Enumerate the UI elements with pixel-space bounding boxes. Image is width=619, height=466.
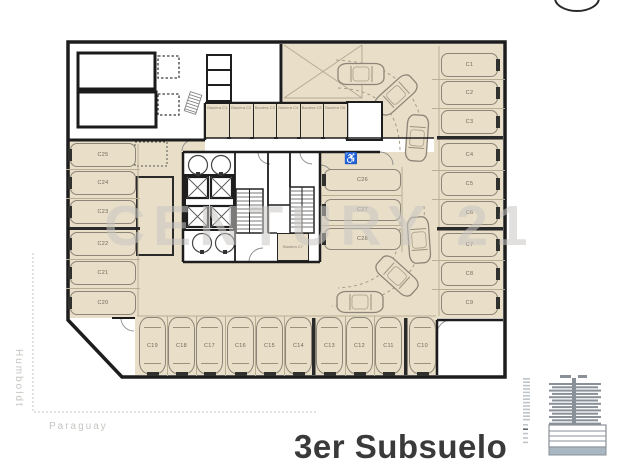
parking-spot-label: C20 (98, 300, 109, 306)
parking-spot: C18 (168, 317, 195, 374)
wall-tick (68, 177, 72, 189)
parking-spot: C1 (441, 53, 498, 77)
parking-spot: C11 (375, 317, 402, 374)
parking-spot: C26 (324, 169, 401, 191)
parking-spot-label: C24 (98, 180, 109, 186)
parking-spot: C9 (441, 291, 498, 315)
spot-separator-line (321, 225, 402, 226)
spot-separator-line (66, 198, 140, 199)
parking-spot: C15 (256, 317, 283, 374)
parking-spot-label: C8 (466, 271, 474, 277)
parking-spot-label: C10 (417, 343, 428, 349)
parking-spot-label: C7 (466, 242, 474, 248)
parking-spot: C8 (441, 262, 498, 286)
wall-tick (496, 178, 500, 190)
parking-spot-label: C13 (324, 343, 335, 349)
wall-tick (68, 206, 72, 218)
parking-spot-label: C9 (466, 300, 474, 306)
parking-spot-label: C16 (235, 343, 246, 349)
parking-spot-label: C26 (357, 177, 368, 183)
wall-tick (235, 372, 247, 376)
parking-spot-label: C19 (147, 343, 158, 349)
wall-tick (383, 372, 395, 376)
wall-tick (176, 372, 188, 376)
storage-room-c7: Baulera C7 (277, 233, 309, 261)
parking-spot-label: C25 (98, 152, 109, 158)
parking-spot: C22 (70, 232, 136, 256)
parking-spot: C12 (346, 317, 373, 374)
parking-spot: C10 (409, 317, 436, 374)
parking-spot: C13 (316, 317, 343, 374)
wall-tick (354, 372, 366, 376)
storage-room-label: Baulera C6 (324, 106, 347, 137)
parking-spot: C5 (441, 172, 498, 196)
spot-separator-line (66, 169, 140, 170)
parking-spot-label: C15 (264, 343, 275, 349)
spot-separator-line (66, 288, 140, 289)
wall-tick (496, 149, 500, 161)
parking-spot: C7 (441, 233, 498, 257)
spot-separator-line (66, 259, 140, 260)
spot-separator-line (225, 316, 226, 376)
parking-spot-label: C17 (204, 343, 215, 349)
wall-tick (322, 233, 326, 245)
parking-spot-label: C4 (466, 152, 474, 158)
parking-spot-label: C1 (466, 62, 474, 68)
spot-separator-line (321, 195, 402, 196)
parking-spot-label: C2 (466, 90, 474, 96)
parking-spot-label: C22 (98, 241, 109, 247)
parking-spot-label: C6 (466, 210, 474, 216)
accessible-parking-icon: ♿ (344, 152, 358, 165)
parking-spot: C21 (70, 261, 136, 285)
storage-room: Baulera C4 (276, 104, 300, 137)
wall-tick (496, 239, 500, 251)
parking-spot: C20 (70, 291, 136, 315)
spot-separator-line (432, 199, 505, 200)
floor-plan-overlay: C25C24C23C22C21C20C26C27C28C1C2C3C4C5C6C… (0, 0, 619, 466)
parking-spot: C27 (324, 199, 401, 221)
parking-spot-label: C14 (293, 343, 304, 349)
spot-separator-line (432, 260, 505, 261)
storage-room-label: Baulera C5 (301, 106, 324, 137)
parking-spot: C19 (139, 317, 166, 374)
parking-spot-label: C11 (383, 343, 394, 349)
parking-spot: C4 (441, 143, 498, 167)
wall-tick (496, 116, 500, 128)
parking-spot: C16 (227, 317, 254, 374)
wall-tick (147, 372, 159, 376)
wall-tick (68, 297, 72, 309)
parking-spot: C24 (70, 171, 136, 195)
floor-plan-page: C25C24C23C22C21C20C26C27C28C1C2C3C4C5C6C… (0, 0, 619, 466)
parking-spot-label: C27 (357, 207, 368, 213)
wall-tick (322, 174, 326, 186)
wall-tick (496, 297, 500, 309)
storage-room-label: Baulera C3 (254, 106, 277, 137)
parking-spot: C17 (196, 317, 223, 374)
spot-separator-line (432, 108, 505, 109)
spot-separator-line (432, 289, 505, 290)
storage-room-label: Baulera C2 (230, 106, 253, 137)
parking-spot-label: C18 (176, 343, 187, 349)
wall-tick (68, 267, 72, 279)
wall-tick (322, 204, 326, 216)
parking-spot: C14 (285, 317, 312, 374)
street-label-humboldt: Humboldt (13, 349, 24, 408)
parking-spot-label: C23 (98, 209, 109, 215)
storage-room-label: Baulera C1 (206, 106, 230, 137)
wall-tick (68, 149, 72, 161)
parking-spot-label: C3 (466, 119, 474, 125)
parking-spot: C23 (70, 200, 136, 224)
parking-spot-label: C12 (354, 343, 365, 349)
storage-room: Baulera C5 (300, 104, 324, 137)
wall-tick (496, 207, 500, 219)
storage-room-label: Baulera C7 (278, 245, 308, 250)
page-title: 3er Subsuelo (294, 428, 507, 466)
wall-tick (68, 238, 72, 250)
spot-separator-line (432, 79, 505, 80)
parking-spot: C28 (324, 228, 401, 250)
wall-tick (293, 372, 305, 376)
wall-tick (496, 59, 500, 71)
wall-tick (264, 372, 276, 376)
wall-tick (496, 268, 500, 280)
parking-spot-label: C21 (98, 270, 109, 276)
parking-spot: C25 (70, 143, 136, 167)
parking-spot: C2 (441, 81, 498, 105)
wall-tick (204, 372, 216, 376)
parking-spot: C3 (441, 110, 498, 134)
parking-spot-label: C28 (357, 236, 368, 242)
storage-room: Baulera C2 (229, 104, 253, 137)
wall-tick (324, 372, 336, 376)
storage-room: Baulera C6 (323, 104, 347, 137)
wall-tick (417, 372, 429, 376)
storage-room-label: Baulera C4 (277, 106, 300, 137)
storage-room: Baulera C3 (253, 104, 277, 137)
street-label-paraguay: Paraguay (49, 421, 108, 432)
wall-tick (496, 87, 500, 99)
parking-spot-label: C5 (466, 181, 474, 187)
storage-room: Baulera C1 (206, 104, 230, 137)
spot-separator-line (432, 170, 505, 171)
parking-spot: C6 (441, 201, 498, 225)
